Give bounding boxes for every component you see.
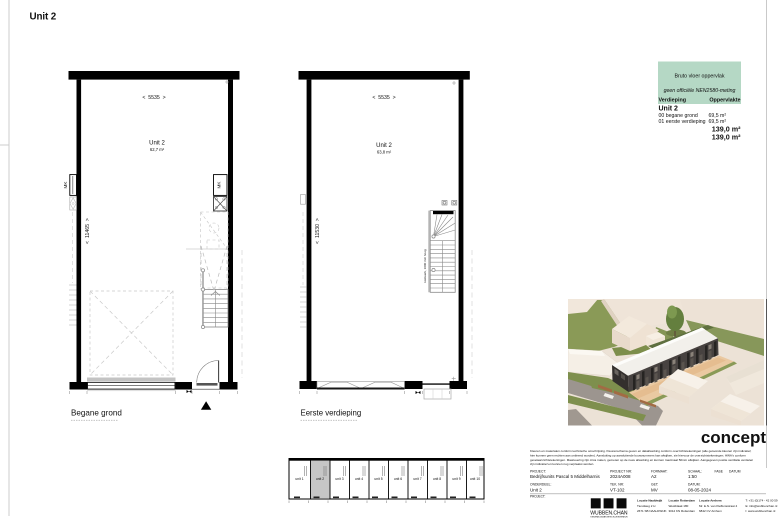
svg-text:6842 CV Arnhem: 6842 CV Arnhem: [699, 509, 722, 513]
svg-text:08-05-2024: 08-05-2024: [688, 488, 712, 493]
svg-text:I: www.wubbenchan.nl: I: www.wubbenchan.nl: [746, 509, 776, 513]
svg-text:3012 KN Rotterdam: 3012 KN Rotterdam: [669, 509, 696, 513]
svg-text:geen officiële NEN2580-meting: geen officiële NEN2580-meting: [664, 88, 736, 94]
svg-text:< 5535 >: < 5535 >: [142, 95, 165, 101]
svg-text:01 eerste verdieping: 01 eerste verdieping: [659, 119, 706, 125]
svg-text:Eerste verdieping: Eerste verdieping: [301, 409, 362, 418]
svg-text:unit 9: unit 9: [452, 477, 460, 481]
svg-text:unit 10: unit 10: [470, 477, 480, 481]
svg-text:Hekwerk, 1000 mm hoog: Hekwerk, 1000 mm hoog: [423, 249, 427, 283]
svg-text:DATUM: DATUM: [729, 470, 741, 474]
svg-text:VT-102: VT-102: [610, 488, 625, 493]
svg-text:Mr. E.N. van Kleffensstraat 4: Mr. E.N. van Kleffensstraat 4: [699, 504, 737, 508]
svg-text:FASE: FASE: [715, 470, 724, 474]
svg-text:Oppervlakte: Oppervlakte: [709, 97, 740, 103]
svg-text:T: +31 (0)174 - 42 00 59: T: +31 (0)174 - 42 00 59: [746, 499, 778, 503]
svg-text:< 5535 >: < 5535 >: [372, 95, 395, 101]
svg-text:ONDERDEEL:: ONDERDEEL:: [530, 483, 552, 487]
svg-text:Locatie Arnhem: Locatie Arnhem: [699, 499, 722, 503]
svg-text:Locatie Naaldwijk: Locatie Naaldwijk: [637, 499, 663, 503]
svg-text:MK: MK: [63, 181, 68, 189]
svg-text:unit 8: unit 8: [433, 477, 441, 481]
svg-text:2671 SB NAALDWIJK: 2671 SB NAALDWIJK: [637, 509, 667, 513]
svg-text:E: info@wubbenchan.nl: E: info@wubbenchan.nl: [746, 504, 778, 508]
svg-text:unit 5: unit 5: [374, 477, 382, 481]
svg-text:2024A008: 2024A008: [610, 474, 631, 479]
svg-text:unit 2: unit 2: [316, 477, 324, 481]
svg-text:Westblaak 180: Westblaak 180: [669, 504, 689, 508]
svg-text:Bedrijfsunits Pascal 5 Middelh: Bedrijfsunits Pascal 5 Middelharnis: [530, 474, 601, 479]
svg-text:Unit 2: Unit 2: [376, 143, 392, 149]
svg-text:< 11530 >: < 11530 >: [315, 218, 321, 244]
svg-text:unit 7: unit 7: [413, 477, 421, 481]
svg-text:concept: concept: [701, 428, 767, 447]
svg-text:MK: MK: [217, 181, 222, 189]
svg-text:Bruto vloer oppervlak: Bruto vloer oppervlak: [674, 73, 724, 79]
svg-text:unit 1: unit 1: [295, 477, 303, 481]
svg-text:WUBBEN.CHAN: WUBBEN.CHAN: [590, 510, 628, 516]
svg-text:Unit 2: Unit 2: [659, 106, 679, 113]
svg-text:139,0 m²: 139,0 m²: [712, 132, 741, 141]
svg-text:STEDENBOUW ARCHITECTUUR INTERI: STEDENBOUW ARCHITECTUUR INTERIEUR: [590, 516, 628, 519]
svg-text:A2: A2: [651, 474, 657, 479]
svg-text:PROJECT:: PROJECT:: [530, 495, 546, 499]
svg-text:Locatie Rotterdam: Locatie Rotterdam: [669, 499, 696, 503]
svg-text:MV: MV: [651, 488, 658, 493]
svg-text:TEK. NR:: TEK. NR:: [610, 483, 624, 487]
svg-text:DATUM:: DATUM:: [688, 483, 700, 487]
svg-text:zijn indicatief en kunnen nog: zijn indicatief en kunnen nog verplaatst…: [530, 462, 594, 466]
svg-text:Unit 2: Unit 2: [149, 141, 165, 147]
svg-text:Begane grond: Begane grond: [71, 409, 122, 418]
svg-text:< 11465 >: < 11465 >: [85, 218, 91, 244]
svg-text:1:50: 1:50: [688, 474, 697, 479]
svg-text:unit 4: unit 4: [355, 477, 363, 481]
svg-text:Unit 2: Unit 2: [530, 488, 542, 493]
svg-text:Unit 2: Unit 2: [30, 11, 57, 22]
svg-text:unit 3: unit 3: [335, 477, 343, 481]
svg-text:GET:: GET:: [651, 483, 658, 487]
svg-text:unit 6: unit 6: [394, 477, 402, 481]
svg-text:62,7 m²: 62,7 m²: [150, 147, 165, 152]
svg-text:Verdieping: Verdieping: [659, 97, 687, 103]
svg-text:63,8 m²: 63,8 m²: [377, 150, 392, 155]
svg-text:Tiendweg 2 H: Tiendweg 2 H: [637, 504, 655, 508]
